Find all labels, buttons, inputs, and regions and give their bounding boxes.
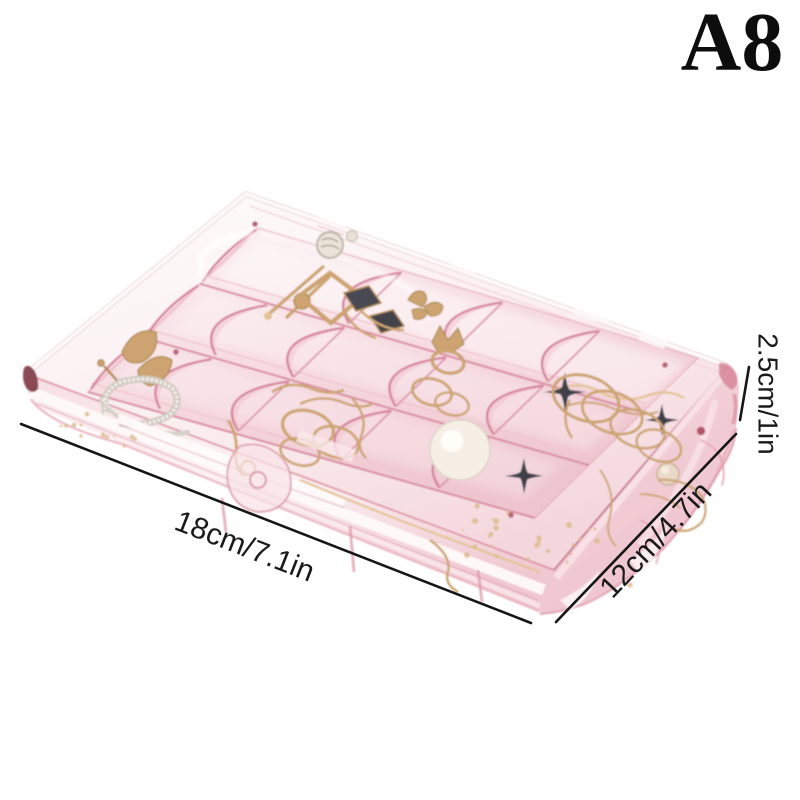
svg-text:A8: A8: [681, 0, 784, 89]
svg-text:2.5cm/1in: 2.5cm/1in: [753, 333, 784, 454]
